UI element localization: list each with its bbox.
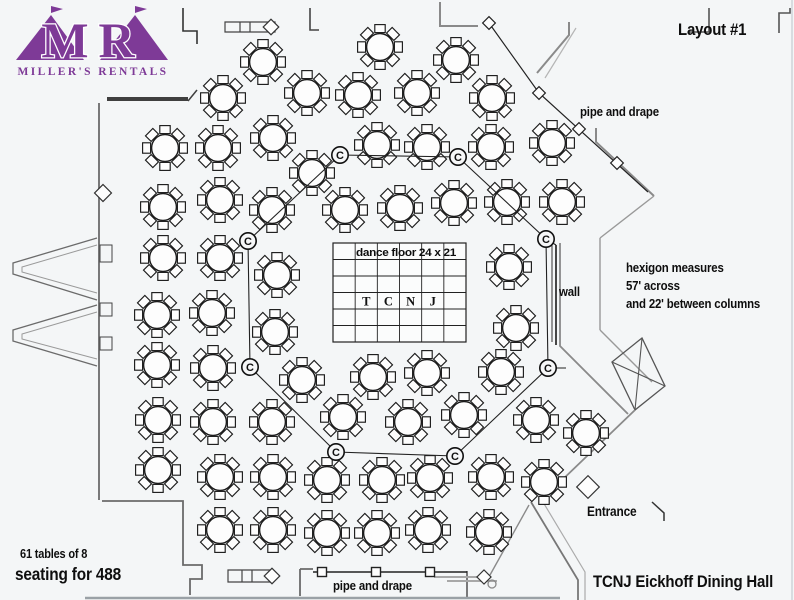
table-chair — [487, 112, 497, 120]
table-chair — [494, 323, 502, 333]
table-top — [207, 187, 234, 214]
table-chair — [258, 40, 268, 48]
table-top — [539, 130, 566, 157]
banquet-table — [469, 125, 514, 170]
table-chair — [326, 168, 334, 178]
table-chair — [372, 547, 382, 555]
table-chair — [478, 410, 486, 420]
table-chair — [539, 496, 549, 504]
banquet-table — [143, 126, 188, 171]
table-chair — [459, 393, 469, 401]
banquet-table — [290, 151, 335, 196]
table-chair — [504, 281, 514, 289]
table-chair — [153, 448, 163, 456]
table-chair — [432, 198, 440, 208]
table-chair — [270, 310, 280, 318]
table-chair — [198, 472, 206, 482]
table-chair — [355, 528, 363, 538]
table-chair — [218, 76, 228, 84]
table-chair — [372, 511, 382, 519]
table-chair — [414, 203, 422, 213]
table-chair — [158, 236, 168, 244]
table-top — [360, 364, 387, 391]
table-chair — [341, 475, 349, 485]
table-chair — [250, 417, 258, 427]
table-top — [417, 465, 444, 492]
wall-segment — [596, 128, 654, 196]
banquet-table — [358, 25, 403, 70]
banquet-table — [201, 76, 246, 121]
table-top — [531, 469, 558, 496]
table-chair — [557, 180, 567, 188]
table-top — [145, 457, 172, 484]
table-chair — [451, 74, 461, 82]
table-chair — [234, 472, 242, 482]
banquet-table — [198, 455, 243, 500]
table-chair — [213, 126, 223, 134]
table-chair — [558, 477, 566, 487]
table-chair — [208, 346, 218, 354]
banquet-table — [251, 508, 296, 553]
dance-floor-label: dance floor 24 x 21 — [356, 247, 456, 259]
banquet-table — [141, 236, 186, 281]
table-chair — [441, 142, 449, 152]
banquet-table — [467, 510, 512, 555]
table-chair — [338, 431, 348, 439]
column-marker: C — [538, 231, 554, 247]
table-chair — [391, 528, 399, 538]
banquet-table — [479, 350, 524, 395]
table-chair — [422, 387, 432, 395]
table-chair — [208, 400, 218, 408]
table-chair — [441, 368, 449, 378]
wall-segment — [188, 90, 197, 101]
table-chair — [442, 410, 450, 420]
table-chair — [215, 491, 225, 499]
table-top — [259, 409, 286, 436]
wall-segment — [440, 2, 478, 26]
table-chair — [258, 76, 268, 84]
banquet-table — [469, 455, 514, 500]
table-chair — [268, 455, 278, 463]
table-chair — [395, 186, 405, 194]
hexagon-note: hexigon measures 57' across and 22' betw… — [626, 259, 760, 313]
table-chair — [511, 306, 521, 314]
table-chair — [250, 205, 258, 215]
table-chair — [377, 494, 387, 502]
table-chair — [547, 157, 557, 165]
table-chair — [514, 415, 522, 425]
wall-segment — [183, 8, 197, 44]
table-chair — [280, 375, 288, 385]
table-chair — [377, 458, 387, 466]
table-chair — [396, 475, 404, 485]
table-chair — [523, 262, 531, 272]
table-chair — [268, 116, 278, 124]
table-top — [207, 245, 234, 272]
table-top — [364, 132, 391, 159]
banquet-table — [253, 310, 298, 355]
table-top — [479, 85, 506, 112]
table-chair — [270, 346, 280, 354]
table-chair — [341, 528, 349, 538]
table-chair — [285, 88, 293, 98]
table-top — [496, 254, 523, 281]
table-chair — [287, 525, 295, 535]
banquet-table — [305, 511, 350, 556]
table-chair — [511, 342, 521, 350]
table-chair — [153, 398, 163, 406]
table-chair — [485, 197, 493, 207]
wall-segment — [300, 569, 313, 596]
banquet-table — [355, 123, 400, 168]
table-chair — [277, 57, 285, 67]
pipe-drape-bottom-label: pipe and drape — [333, 577, 412, 595]
banquet-table — [360, 458, 405, 503]
table-chair — [234, 253, 242, 263]
table-chair — [290, 168, 298, 178]
table-chair — [177, 202, 185, 212]
table-top — [250, 49, 277, 76]
table-chair — [503, 527, 511, 537]
table-chair — [539, 460, 549, 468]
banquet-table — [135, 343, 180, 388]
banquet-table — [405, 125, 450, 170]
table-chair — [321, 412, 329, 422]
table-top — [395, 409, 422, 436]
table-chair — [141, 253, 149, 263]
banquet-table — [136, 398, 181, 443]
table-chair — [386, 417, 394, 427]
table-top — [150, 245, 177, 272]
banquet-table — [432, 181, 477, 226]
table-chair — [208, 436, 218, 444]
wall-label: wall — [559, 283, 580, 301]
table-chair — [469, 472, 477, 482]
table-chair — [198, 195, 206, 205]
table-chair — [581, 411, 591, 419]
table-chair — [152, 293, 162, 301]
table-chair — [522, 477, 530, 487]
column-marker: C — [240, 233, 256, 249]
table-chair — [504, 245, 514, 253]
wall-segment — [100, 337, 112, 350]
table-chair — [359, 205, 367, 215]
table-chair — [368, 391, 378, 399]
table-top — [415, 517, 442, 544]
table-chair — [227, 417, 235, 427]
table-chair — [469, 142, 477, 152]
table-chair — [232, 143, 240, 153]
column-marker-letter: C — [332, 447, 340, 459]
wall-segment — [779, 8, 790, 33]
table-top — [264, 262, 291, 289]
table-top — [345, 82, 372, 109]
table-chair — [237, 93, 245, 103]
dance-floor-letter: C — [384, 294, 393, 308]
table-top — [260, 125, 287, 152]
table-chair — [201, 93, 209, 103]
banquet-table — [405, 351, 450, 396]
table-chair — [160, 126, 170, 134]
table-chair — [487, 76, 497, 84]
table-top — [144, 302, 171, 329]
column-marker-letter: C — [454, 152, 462, 164]
table-chair — [531, 434, 541, 442]
table-chair — [479, 367, 487, 377]
table-chair — [136, 415, 144, 425]
table-chair — [251, 133, 259, 143]
table-chair — [172, 415, 180, 425]
table-chair — [251, 472, 259, 482]
table-chair — [215, 236, 225, 244]
table-top — [369, 467, 396, 494]
wall-segment — [545, 28, 576, 78]
table-chair — [272, 289, 282, 297]
banquet-table — [196, 126, 241, 171]
table-chair — [207, 327, 217, 335]
table-chair — [267, 188, 277, 196]
banquet-table — [241, 40, 286, 85]
table-chair — [357, 412, 365, 422]
dance-floor-letter: N — [406, 294, 415, 308]
wall-segment — [22, 245, 97, 293]
table-chair — [406, 525, 414, 535]
table-chair — [158, 272, 168, 280]
table-chair — [191, 417, 199, 427]
table-chair — [505, 142, 513, 152]
table-chair — [375, 61, 385, 69]
banquet-table — [442, 393, 487, 438]
column-marker: C — [450, 149, 466, 165]
table-chair — [152, 343, 162, 351]
table-chair — [158, 185, 168, 193]
table-chair — [412, 71, 422, 79]
table-chair — [422, 417, 430, 427]
table-chair — [405, 368, 413, 378]
table-chair — [486, 455, 496, 463]
table-chair — [422, 161, 432, 169]
table-top — [205, 135, 232, 162]
table-chair — [355, 140, 363, 150]
table-chair — [378, 203, 386, 213]
table-chair — [241, 57, 249, 67]
table-chair — [268, 544, 278, 552]
table-chair — [502, 216, 512, 224]
table-chair — [267, 436, 277, 444]
table-top — [332, 197, 359, 224]
table-chair — [297, 358, 307, 366]
table-chair — [227, 363, 235, 373]
seating-count-note: seating for 488 — [15, 562, 121, 586]
table-chair — [470, 55, 478, 65]
table-chair — [322, 547, 332, 555]
table-top — [314, 520, 341, 547]
table-chair — [287, 133, 295, 143]
table-chair — [253, 327, 261, 337]
table-chair — [496, 386, 506, 394]
table-chair — [368, 355, 378, 363]
table-chair — [576, 197, 584, 207]
banquet-table — [198, 508, 243, 553]
table-top — [573, 420, 600, 447]
table-chair — [470, 93, 478, 103]
table-top — [330, 404, 357, 431]
table-chair — [372, 159, 382, 167]
table-top — [523, 407, 550, 434]
table-chair — [226, 308, 234, 318]
table-top — [503, 315, 530, 342]
banquet-table — [522, 460, 567, 505]
table-chair — [152, 379, 162, 387]
table-chair — [213, 162, 223, 170]
table-chair — [234, 525, 242, 535]
table-chair — [215, 455, 225, 463]
table-top — [150, 194, 177, 221]
table-chair — [515, 367, 523, 377]
table-chair — [403, 436, 413, 444]
table-top — [144, 352, 171, 379]
table-chair — [351, 372, 359, 382]
table-chair — [434, 55, 442, 65]
table-top — [478, 464, 505, 491]
table-chair — [141, 202, 149, 212]
table-chair — [425, 492, 435, 500]
table-chair — [251, 525, 259, 535]
table-top — [294, 80, 321, 107]
table-chair — [358, 42, 366, 52]
table-chair — [207, 291, 217, 299]
table-chair — [336, 90, 344, 100]
door-diamond-icon — [577, 476, 600, 499]
table-chair — [449, 217, 459, 225]
table-top — [367, 34, 394, 61]
banquet-table — [494, 306, 539, 351]
table-chair — [297, 394, 307, 402]
banquet-table — [250, 400, 295, 445]
table-chair — [302, 71, 312, 79]
table-top — [207, 464, 234, 491]
wall-segment — [310, 8, 319, 30]
logo-monogram: MR — [41, 12, 144, 68]
table-chair — [484, 546, 494, 554]
banquet-table — [198, 236, 243, 281]
table-chair — [171, 310, 179, 320]
table-chair — [423, 508, 433, 516]
banquet-table — [135, 293, 180, 338]
table-chair — [408, 473, 416, 483]
column-marker: C — [540, 360, 556, 376]
table-chair — [272, 253, 282, 261]
banquet-table — [136, 448, 181, 493]
table-top — [200, 409, 227, 436]
banquet-table — [351, 355, 396, 400]
table-chair — [505, 472, 513, 482]
banquet-table — [487, 245, 532, 290]
column-marker-letter: C — [336, 150, 344, 162]
wall-segment — [600, 330, 652, 382]
dance-floor-letter: T — [362, 294, 371, 308]
table-chair — [468, 198, 476, 208]
table-chair — [444, 473, 452, 483]
table-chair — [286, 205, 294, 215]
banquet-table — [540, 180, 585, 225]
table-top — [200, 355, 227, 382]
entrance-label: Entrance — [587, 503, 636, 522]
wall-segment — [13, 305, 97, 366]
table-chair — [502, 180, 512, 188]
table-top — [152, 135, 179, 162]
table-top — [451, 402, 478, 429]
layout-title: Layout #1 — [678, 18, 746, 41]
table-chair — [208, 382, 218, 390]
column-marker-letter: C — [244, 236, 252, 248]
banquet-table — [285, 71, 330, 116]
table-chair — [289, 327, 297, 337]
table-top — [210, 85, 237, 112]
banquet-table — [251, 455, 296, 500]
table-chair — [191, 363, 199, 373]
table-chair — [268, 508, 278, 516]
table-chair — [305, 528, 313, 538]
banquet-table — [191, 346, 236, 391]
wall-segment — [100, 245, 112, 262]
table-chair — [190, 308, 198, 318]
banquet-table — [141, 185, 186, 230]
pipe-pole-icon — [372, 568, 381, 577]
table-top — [145, 407, 172, 434]
column-marker-letter: C — [451, 451, 459, 463]
banquet-table — [305, 458, 350, 503]
table-chair — [305, 475, 313, 485]
pipe-pole-icon — [483, 17, 496, 30]
banquet-table — [323, 188, 368, 233]
table-top — [262, 319, 289, 346]
table-chair — [375, 25, 385, 33]
banquet-table — [378, 186, 423, 231]
table-chair — [431, 88, 439, 98]
column-marker-letter: C — [542, 234, 550, 246]
table-chair — [322, 511, 332, 519]
table-top — [364, 520, 391, 547]
table-chair — [487, 262, 495, 272]
table-top — [549, 189, 576, 216]
table-top — [404, 80, 431, 107]
table-chair — [484, 510, 494, 518]
logo-name: MILLER'S RENTALS — [18, 66, 169, 78]
table-top — [441, 190, 468, 217]
table-chair — [405, 142, 413, 152]
dance-floor: dance floor 24 x 21TCNJ — [333, 243, 466, 342]
table-chair — [340, 188, 350, 196]
table-chair — [449, 181, 459, 189]
banquet-table — [250, 188, 295, 233]
table-chair — [234, 195, 242, 205]
table-chair — [581, 447, 591, 455]
banquet-table — [336, 73, 381, 118]
table-chair — [564, 428, 572, 438]
banquet-table — [355, 511, 400, 556]
table-chair — [403, 400, 413, 408]
table-chair — [268, 491, 278, 499]
table-chair — [171, 360, 179, 370]
table-top — [476, 519, 503, 546]
table-chair — [302, 107, 312, 115]
table-chair — [153, 484, 163, 492]
table-chair — [425, 456, 435, 464]
table-chair — [218, 112, 228, 120]
table-top — [199, 300, 226, 327]
